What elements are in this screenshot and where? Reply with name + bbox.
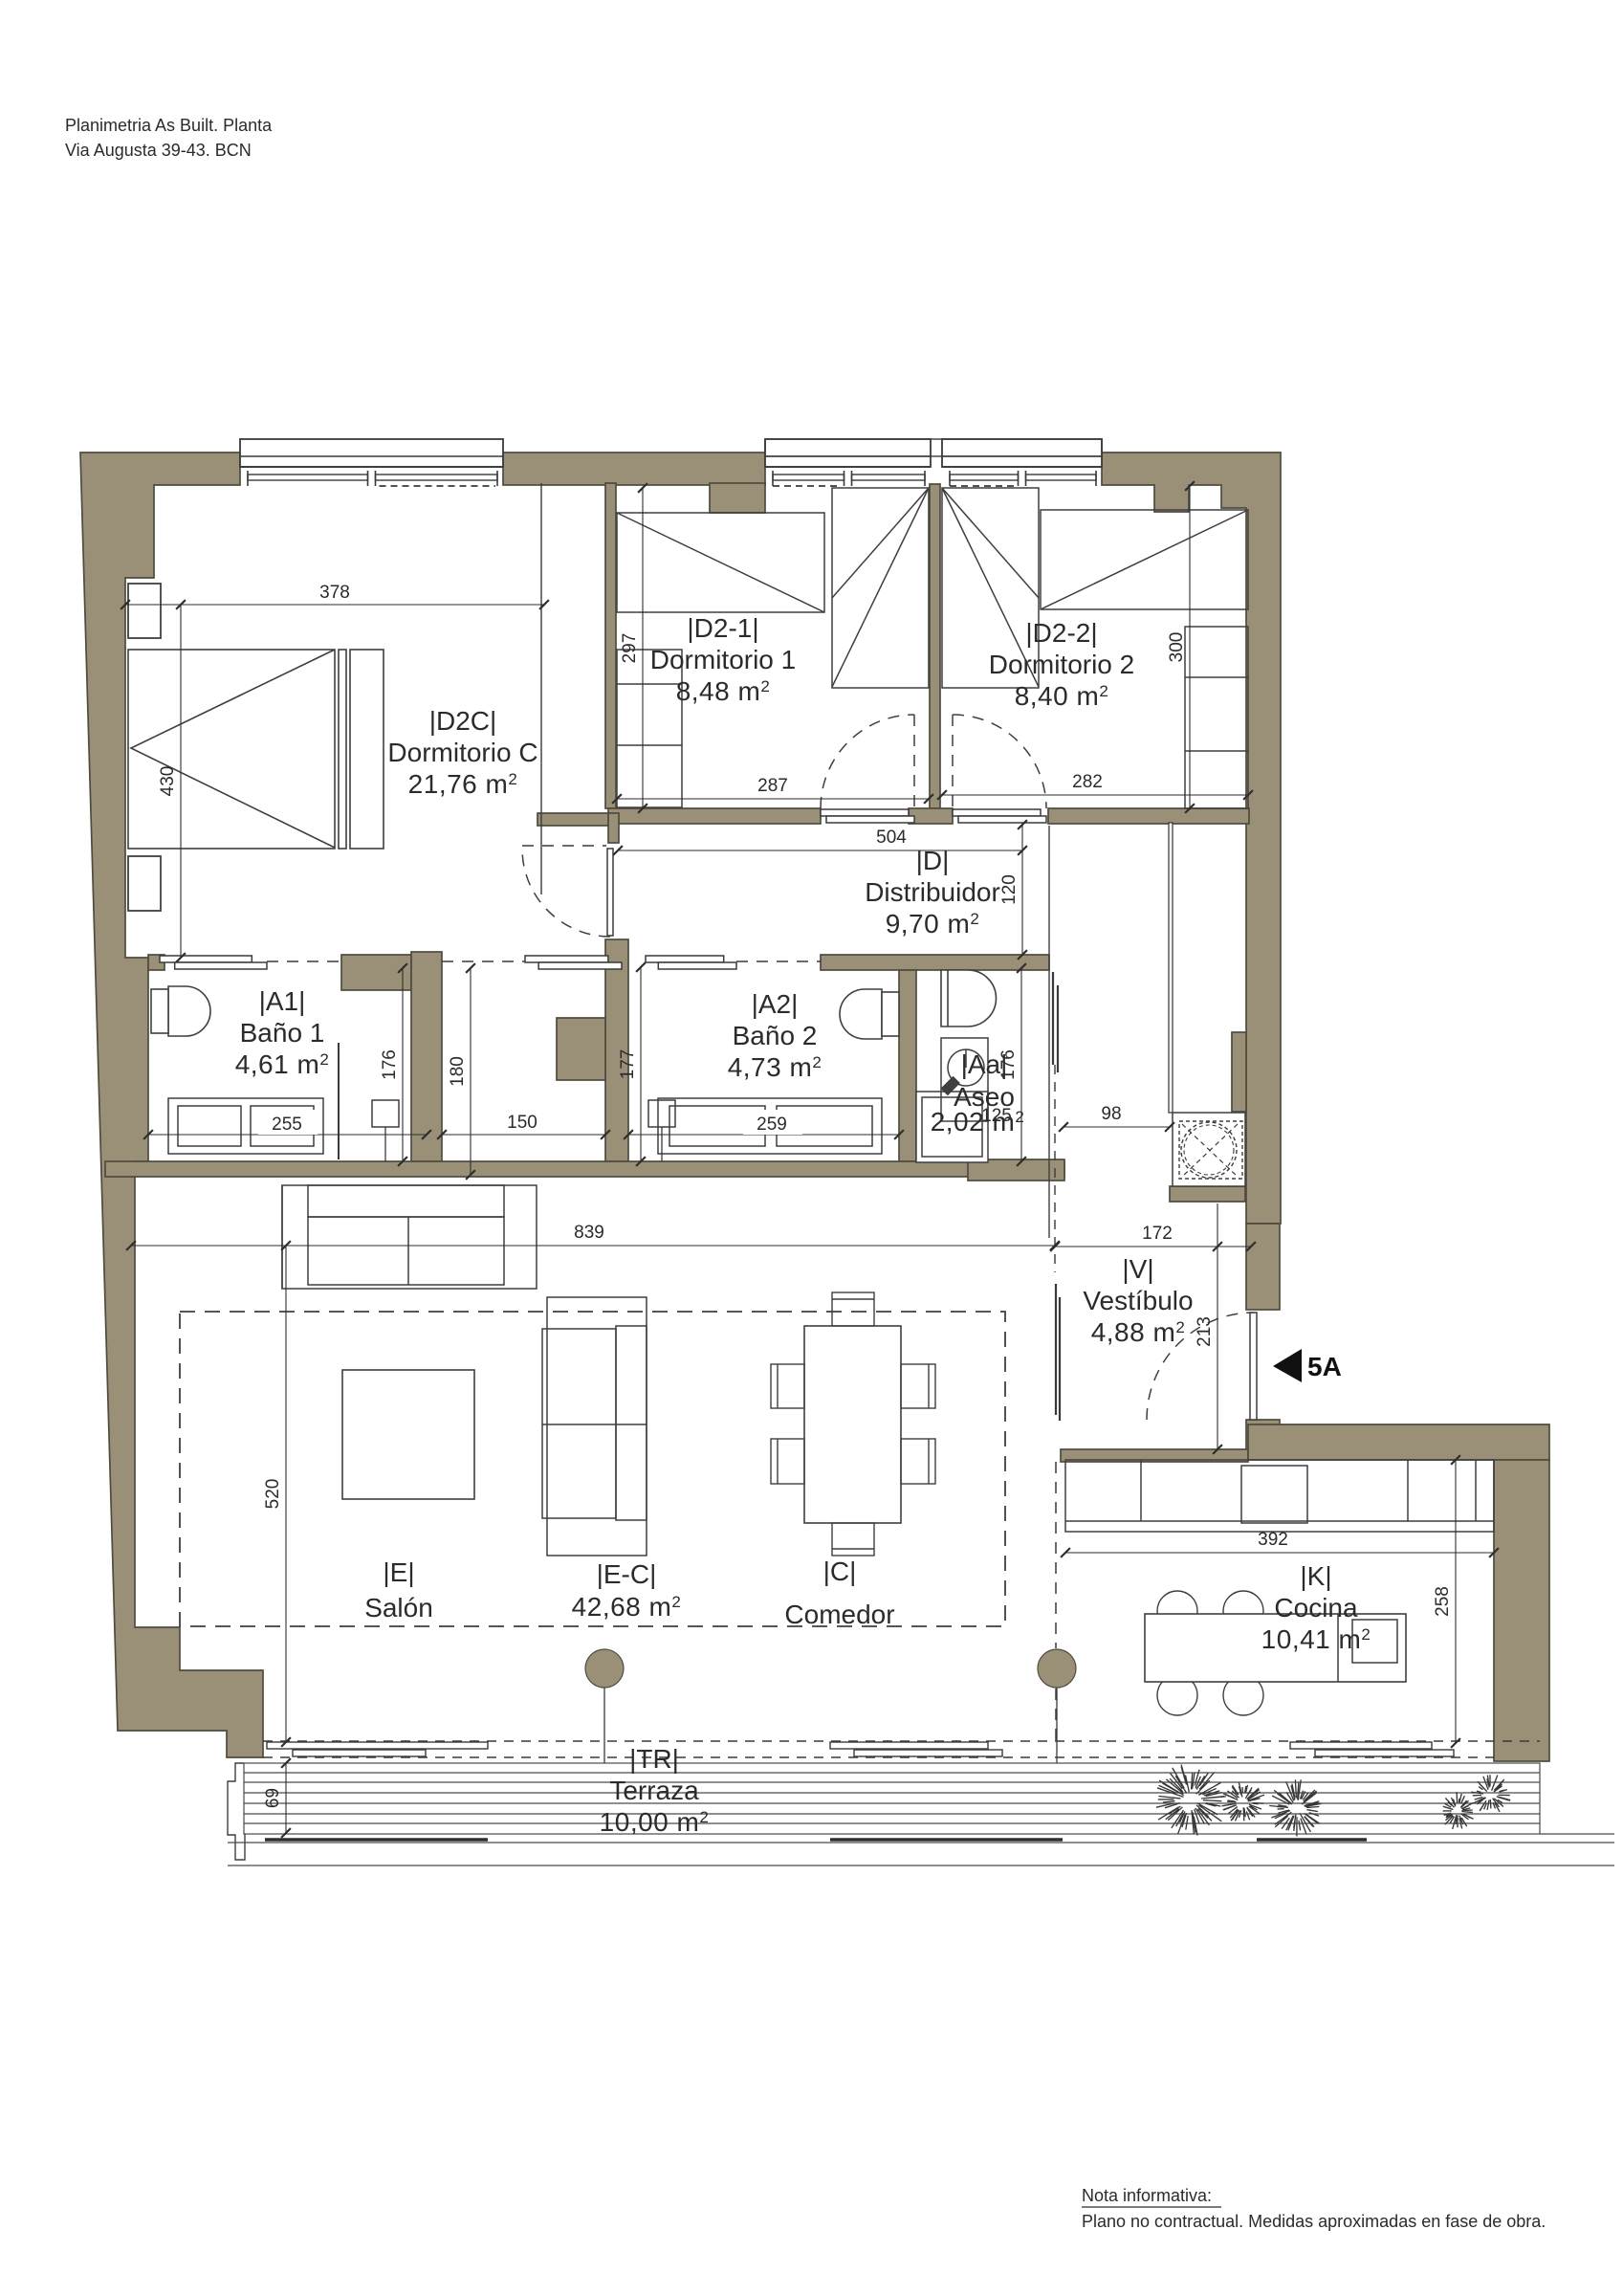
- svg-text:378: 378: [319, 583, 350, 603]
- svg-text:|D2-2|: |D2-2|: [1025, 618, 1097, 648]
- svg-text:Nota informativa:: Nota informativa:: [1082, 2186, 1212, 2205]
- svg-text:Cocina: Cocina: [1274, 1593, 1358, 1623]
- svg-text:520: 520: [263, 1479, 283, 1510]
- svg-text:180: 180: [448, 1056, 468, 1087]
- svg-text:430: 430: [158, 766, 178, 797]
- svg-text:Dormitorio 2: Dormitorio 2: [989, 650, 1134, 679]
- svg-text:4,61 m2: 4,61 m2: [235, 1049, 330, 1079]
- svg-text:|E-C|: |E-C|: [597, 1559, 657, 1589]
- svg-text:|D2-1|: |D2-1|: [687, 613, 758, 643]
- svg-text:392: 392: [1258, 1530, 1288, 1550]
- svg-text:Baño 1: Baño 1: [240, 1018, 325, 1048]
- svg-text:10,00 m2: 10,00 m2: [600, 1807, 710, 1837]
- svg-text:69: 69: [263, 1788, 283, 1808]
- svg-text:8,48 m2: 8,48 m2: [676, 676, 771, 706]
- svg-text:Dormitorio 1: Dormitorio 1: [650, 645, 796, 674]
- svg-text:839: 839: [574, 1223, 604, 1243]
- svg-text:282: 282: [1072, 772, 1103, 792]
- svg-text:172: 172: [1142, 1224, 1173, 1244]
- svg-text:21,76 m2: 21,76 m2: [408, 769, 518, 799]
- svg-text:9,70 m2: 9,70 m2: [886, 909, 980, 938]
- svg-text:|D2C|: |D2C|: [429, 706, 497, 736]
- svg-text:|D|: |D|: [916, 846, 950, 875]
- svg-text:Dormitorio C: Dormitorio C: [387, 738, 537, 767]
- svg-text:4,73 m2: 4,73 m2: [728, 1052, 822, 1082]
- svg-text:120: 120: [999, 874, 1020, 905]
- svg-text:177: 177: [618, 1049, 638, 1080]
- svg-text:|Aa|: |Aa|: [961, 1049, 1008, 1079]
- svg-text:|V|: |V|: [1122, 1254, 1153, 1284]
- svg-text:176: 176: [380, 1049, 400, 1080]
- svg-text:5A: 5A: [1307, 1352, 1342, 1381]
- svg-text:|C|: |C|: [823, 1556, 857, 1586]
- svg-text:|E|: |E|: [383, 1557, 414, 1587]
- svg-text:259: 259: [757, 1115, 787, 1135]
- svg-text:Via Augusta 39-43. BCN: Via Augusta 39-43. BCN: [65, 141, 252, 160]
- svg-text:|A1|: |A1|: [259, 986, 306, 1016]
- svg-text:4,88 m2: 4,88 m2: [1091, 1317, 1186, 1347]
- svg-text:|TR|: |TR|: [629, 1744, 679, 1774]
- svg-text:98: 98: [1101, 1104, 1121, 1124]
- svg-text:Planimetria As Built. Planta: Planimetria As Built. Planta: [65, 116, 273, 135]
- svg-text:Baño 2: Baño 2: [733, 1021, 818, 1050]
- svg-text:287: 287: [757, 776, 788, 796]
- svg-text:255: 255: [272, 1115, 302, 1135]
- svg-text:297: 297: [620, 633, 640, 664]
- svg-text:|A2|: |A2|: [752, 989, 799, 1019]
- svg-text:213: 213: [1195, 1316, 1215, 1347]
- svg-text:Plano no contractual. Medidas: Plano no contractual. Medidas aproximada…: [1082, 2212, 1546, 2231]
- svg-text:300: 300: [1167, 632, 1187, 663]
- svg-text:2,02 m2: 2,02 m2: [931, 1107, 1025, 1137]
- svg-text:10,41 m2: 10,41 m2: [1261, 1624, 1371, 1654]
- svg-text:Salón: Salón: [364, 1593, 433, 1623]
- svg-text:8,40 m2: 8,40 m2: [1015, 681, 1109, 711]
- svg-text:42,68 m2: 42,68 m2: [572, 1592, 682, 1622]
- svg-text:Comedor: Comedor: [784, 1600, 894, 1629]
- svg-text:Vestíbulo: Vestíbulo: [1083, 1286, 1193, 1315]
- svg-text:|K|: |K|: [1300, 1561, 1331, 1591]
- svg-text:Terraza: Terraza: [609, 1776, 699, 1805]
- svg-text:504: 504: [876, 828, 907, 848]
- svg-text:258: 258: [1433, 1586, 1453, 1617]
- svg-text:150: 150: [507, 1113, 537, 1133]
- svg-text:Distribuidor: Distribuidor: [865, 877, 1000, 907]
